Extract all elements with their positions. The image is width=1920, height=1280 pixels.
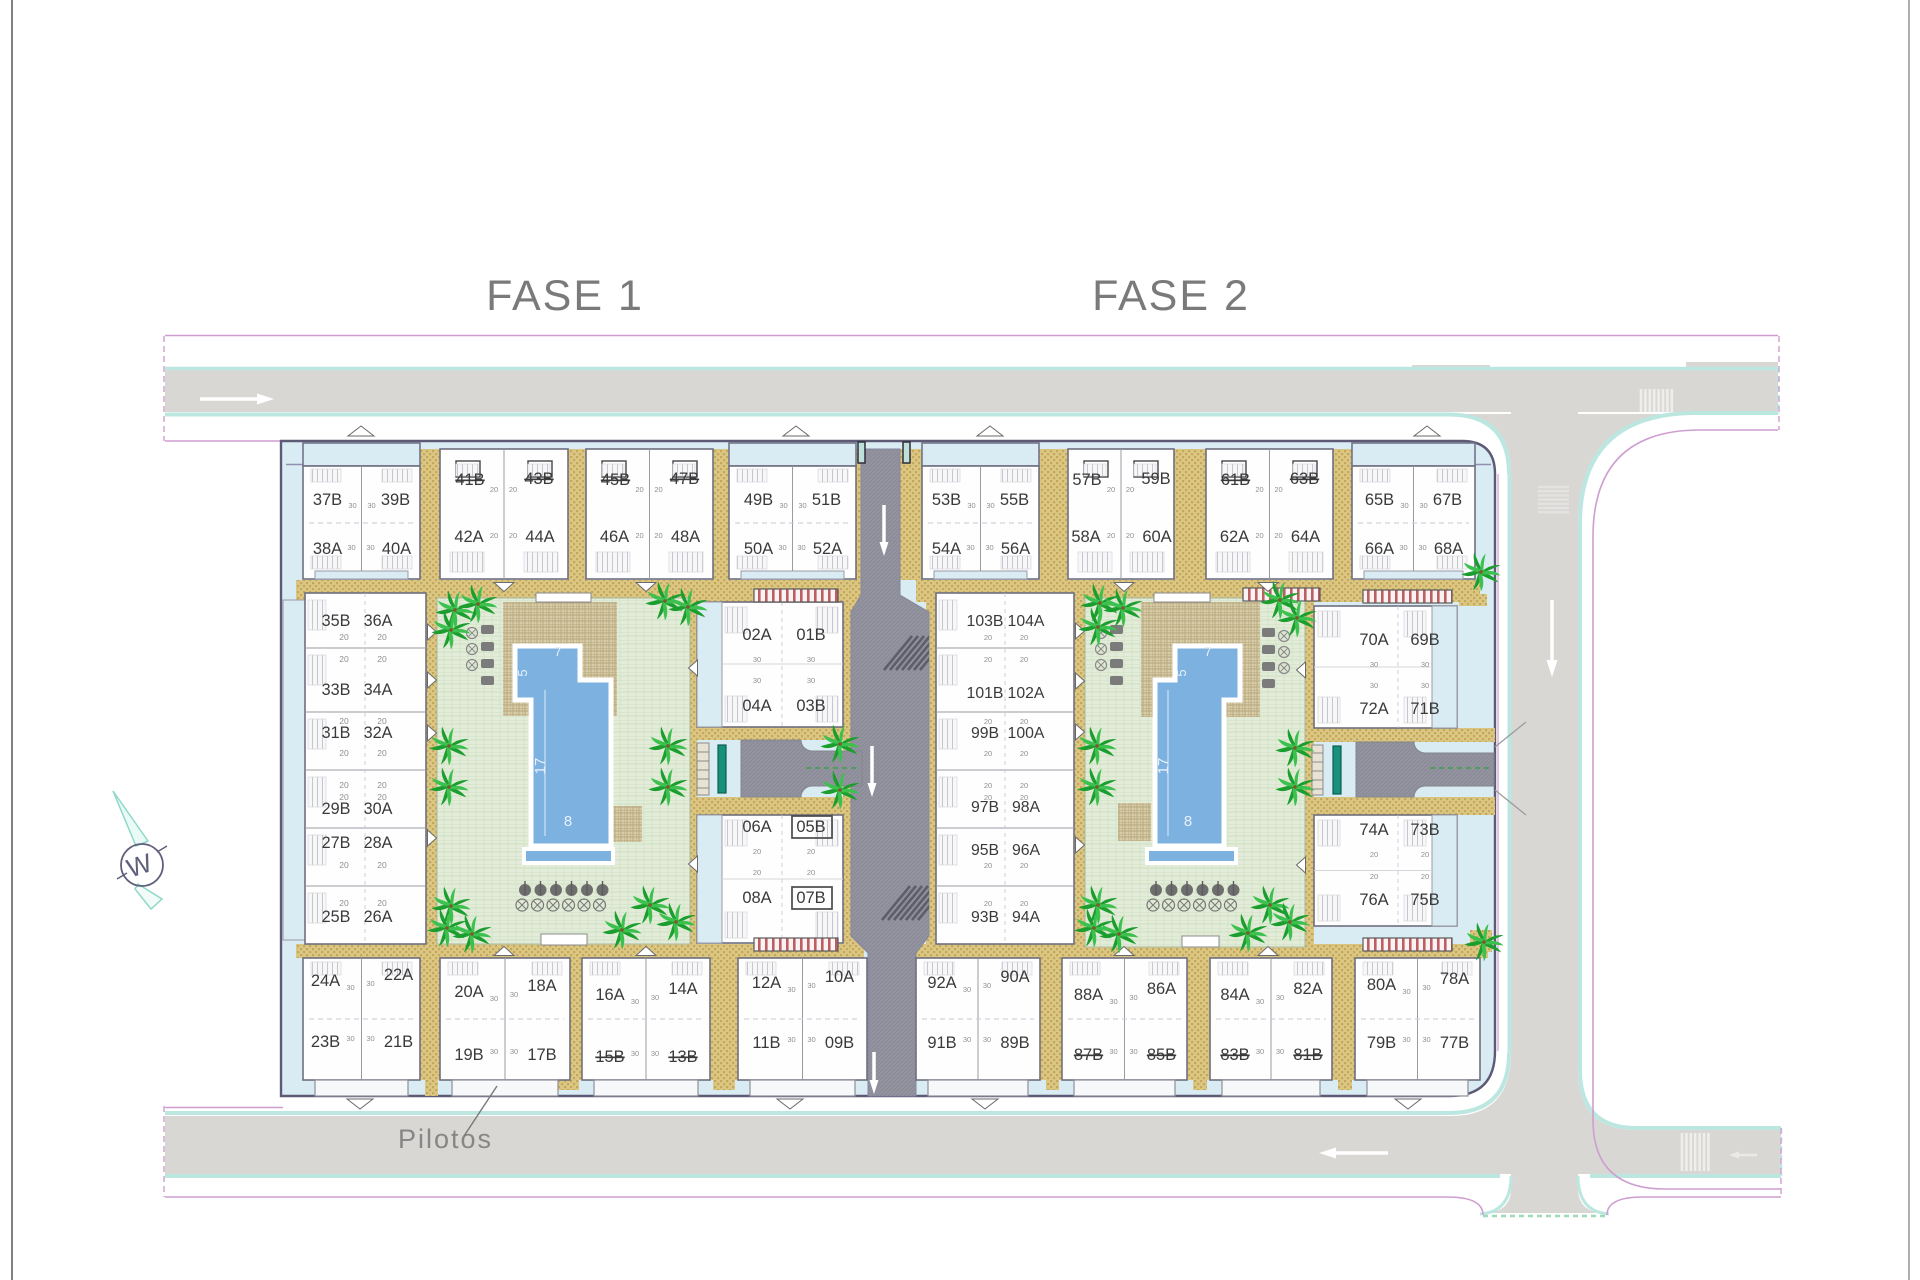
svg-text:20: 20	[1421, 850, 1429, 859]
svg-text:49B: 49B	[744, 491, 773, 509]
svg-text:20: 20	[377, 632, 387, 642]
svg-text:96A: 96A	[1012, 842, 1041, 859]
svg-text:20: 20	[339, 860, 349, 870]
svg-text:20: 20	[490, 485, 498, 494]
svg-text:8: 8	[1184, 813, 1192, 830]
svg-text:FASE 2: FASE 2	[1092, 272, 1250, 320]
svg-text:30: 30	[778, 543, 786, 552]
svg-text:30: 30	[966, 543, 974, 552]
svg-text:30: 30	[779, 501, 787, 510]
svg-text:25B: 25B	[322, 908, 351, 926]
svg-text:30: 30	[1421, 681, 1429, 690]
svg-text:73B: 73B	[1410, 821, 1439, 839]
svg-text:20: 20	[377, 748, 387, 758]
svg-text:26A: 26A	[364, 908, 393, 926]
svg-text:20: 20	[339, 716, 349, 726]
svg-text:100A: 100A	[1008, 725, 1045, 742]
svg-text:30: 30	[983, 1035, 991, 1044]
svg-text:20: 20	[509, 485, 517, 494]
svg-text:30: 30	[1399, 543, 1407, 552]
svg-text:7: 7	[1204, 644, 1211, 659]
svg-text:30: 30	[787, 1035, 795, 1044]
svg-text:30: 30	[963, 985, 971, 994]
svg-text:20: 20	[1107, 485, 1115, 494]
svg-text:62A: 62A	[1220, 528, 1249, 546]
svg-text:45B: 45B	[601, 471, 630, 489]
svg-text:20: 20	[377, 860, 387, 870]
svg-text:60A: 60A	[1142, 528, 1171, 546]
svg-text:01B: 01B	[796, 626, 825, 644]
svg-text:20: 20	[339, 780, 349, 790]
svg-text:30: 30	[985, 543, 993, 552]
svg-text:30: 30	[1421, 660, 1429, 669]
svg-text:11B: 11B	[752, 1034, 780, 1052]
svg-text:20: 20	[807, 847, 815, 856]
svg-text:30: 30	[807, 1035, 815, 1044]
svg-text:06A: 06A	[742, 818, 771, 836]
svg-text:101B: 101B	[967, 685, 1004, 702]
svg-text:30: 30	[807, 676, 815, 685]
svg-text:30: 30	[510, 990, 518, 999]
svg-text:30: 30	[651, 1049, 659, 1058]
svg-text:20: 20	[1020, 861, 1028, 870]
svg-text:30: 30	[1276, 1047, 1284, 1056]
svg-text:03B: 03B	[796, 697, 825, 715]
svg-text:28A: 28A	[364, 834, 393, 852]
svg-text:20: 20	[1421, 872, 1429, 881]
svg-text:20: 20	[1020, 899, 1028, 908]
svg-text:77B: 77B	[1440, 1034, 1469, 1052]
svg-text:30: 30	[787, 985, 795, 994]
svg-text:30: 30	[1256, 997, 1264, 1006]
svg-text:52A: 52A	[813, 540, 842, 558]
svg-text:20: 20	[1020, 717, 1028, 726]
svg-text:87B: 87B	[1074, 1046, 1103, 1064]
svg-text:37B: 37B	[313, 491, 342, 509]
svg-text:30: 30	[963, 1035, 971, 1044]
svg-text:10A: 10A	[825, 968, 854, 986]
svg-text:20: 20	[1020, 633, 1028, 642]
svg-text:46A: 46A	[600, 528, 629, 546]
svg-text:30: 30	[366, 543, 374, 552]
svg-text:80A: 80A	[1367, 976, 1396, 994]
svg-text:30: 30	[753, 676, 761, 685]
svg-text:31B: 31B	[322, 724, 351, 742]
svg-text:5: 5	[1174, 669, 1189, 676]
svg-text:30: 30	[1129, 993, 1137, 1002]
svg-text:21B: 21B	[384, 1033, 413, 1051]
svg-text:82A: 82A	[1293, 980, 1322, 998]
svg-text:95B: 95B	[971, 842, 999, 859]
svg-text:93B: 93B	[971, 909, 999, 926]
svg-text:30: 30	[1418, 543, 1426, 552]
svg-text:30: 30	[490, 994, 498, 1003]
svg-text:20: 20	[807, 868, 815, 877]
svg-text:30: 30	[1402, 1035, 1410, 1044]
svg-text:76A: 76A	[1359, 891, 1388, 909]
svg-text:17: 17	[1155, 758, 1172, 775]
svg-text:20: 20	[377, 898, 387, 908]
svg-text:20: 20	[490, 531, 498, 540]
svg-text:40A: 40A	[382, 540, 411, 558]
svg-text:79B: 79B	[1367, 1034, 1396, 1052]
svg-text:78A: 78A	[1440, 970, 1469, 988]
svg-text:63B: 63B	[1290, 470, 1319, 488]
svg-text:7: 7	[554, 644, 561, 659]
svg-text:41B: 41B	[455, 471, 484, 489]
svg-text:20: 20	[635, 531, 643, 540]
svg-text:72A: 72A	[1359, 700, 1388, 718]
svg-text:30: 30	[346, 1034, 354, 1043]
svg-text:30: 30	[1129, 1047, 1137, 1056]
svg-text:17B: 17B	[527, 1046, 556, 1064]
svg-text:29B: 29B	[322, 800, 351, 818]
svg-text:99B: 99B	[971, 725, 999, 742]
svg-text:Pilotos: Pilotos	[398, 1124, 493, 1154]
svg-text:61B: 61B	[1221, 471, 1250, 489]
svg-text:55B: 55B	[1000, 491, 1029, 509]
svg-text:20: 20	[984, 749, 992, 758]
svg-text:20: 20	[1370, 850, 1378, 859]
svg-text:70A: 70A	[1359, 631, 1388, 649]
svg-text:20: 20	[984, 781, 992, 790]
svg-text:20: 20	[1020, 793, 1028, 802]
svg-text:33B: 33B	[322, 681, 351, 699]
svg-text:14A: 14A	[668, 980, 697, 998]
svg-text:20: 20	[377, 780, 387, 790]
svg-text:38A: 38A	[313, 540, 342, 558]
svg-text:20: 20	[1370, 872, 1378, 881]
svg-text:30: 30	[797, 543, 805, 552]
svg-text:30: 30	[366, 1034, 374, 1043]
svg-text:30: 30	[348, 501, 356, 510]
svg-text:30: 30	[1109, 997, 1117, 1006]
svg-text:16A: 16A	[595, 986, 624, 1004]
svg-text:20: 20	[654, 485, 662, 494]
svg-text:30: 30	[490, 1047, 498, 1056]
svg-text:20: 20	[984, 633, 992, 642]
svg-text:30: 30	[367, 501, 375, 510]
svg-text:20: 20	[1126, 531, 1134, 540]
svg-text:30: 30	[346, 983, 354, 992]
svg-text:85B: 85B	[1147, 1046, 1176, 1064]
svg-text:8: 8	[564, 813, 572, 830]
svg-text:30: 30	[1370, 660, 1378, 669]
svg-text:90A: 90A	[1000, 968, 1029, 986]
svg-text:84A: 84A	[1220, 986, 1249, 1004]
svg-text:20A: 20A	[454, 983, 483, 1001]
svg-text:04A: 04A	[742, 697, 771, 715]
svg-text:30: 30	[631, 1049, 639, 1058]
svg-text:05B: 05B	[796, 818, 825, 836]
svg-text:20: 20	[635, 485, 643, 494]
svg-text:30: 30	[1276, 993, 1284, 1002]
svg-text:20: 20	[984, 861, 992, 870]
svg-text:57B: 57B	[1072, 471, 1101, 489]
svg-text:FASE 1: FASE 1	[486, 272, 644, 320]
svg-text:30: 30	[1400, 501, 1408, 510]
svg-text:30: 30	[807, 655, 815, 664]
svg-text:30: 30	[631, 997, 639, 1006]
svg-text:30: 30	[1422, 983, 1430, 992]
svg-text:30: 30	[986, 501, 994, 510]
svg-text:20: 20	[1274, 531, 1282, 540]
svg-text:30A: 30A	[364, 800, 393, 818]
svg-text:20: 20	[984, 717, 992, 726]
svg-text:30: 30	[967, 501, 975, 510]
svg-text:30: 30	[1256, 1047, 1264, 1056]
svg-text:08A: 08A	[742, 889, 771, 907]
svg-text:20: 20	[1274, 485, 1282, 494]
svg-text:19B: 19B	[454, 1046, 483, 1064]
svg-text:20: 20	[509, 531, 517, 540]
svg-text:54A: 54A	[932, 540, 961, 558]
svg-text:47B: 47B	[670, 470, 699, 488]
svg-text:50A: 50A	[744, 540, 773, 558]
svg-text:30: 30	[1370, 681, 1378, 690]
svg-text:75B: 75B	[1410, 891, 1439, 909]
svg-text:24A: 24A	[311, 972, 340, 990]
svg-text:30: 30	[798, 501, 806, 510]
svg-text:18A: 18A	[527, 977, 556, 995]
svg-text:20: 20	[1255, 531, 1263, 540]
svg-text:22A: 22A	[384, 966, 413, 984]
svg-text:20: 20	[1255, 485, 1263, 494]
svg-text:20: 20	[339, 748, 349, 758]
svg-text:34A: 34A	[364, 681, 393, 699]
svg-text:20: 20	[1126, 485, 1134, 494]
svg-text:30: 30	[753, 655, 761, 664]
svg-text:20: 20	[339, 632, 349, 642]
svg-text:30: 30	[1422, 1035, 1430, 1044]
svg-text:64A: 64A	[1291, 528, 1320, 546]
svg-text:83B: 83B	[1220, 1046, 1249, 1064]
svg-text:07B: 07B	[796, 889, 825, 907]
svg-text:86A: 86A	[1147, 980, 1176, 998]
svg-text:20: 20	[339, 654, 349, 664]
svg-text:74A: 74A	[1359, 821, 1388, 839]
svg-text:48A: 48A	[671, 528, 700, 546]
svg-text:35B: 35B	[322, 612, 351, 630]
svg-text:51B: 51B	[812, 491, 841, 509]
svg-text:20: 20	[1107, 531, 1115, 540]
svg-text:20: 20	[984, 655, 992, 664]
svg-text:20: 20	[753, 868, 761, 877]
svg-text:27B: 27B	[322, 834, 351, 852]
svg-text:56A: 56A	[1001, 540, 1030, 558]
svg-text:69B: 69B	[1410, 631, 1439, 649]
svg-text:30: 30	[1109, 1047, 1117, 1056]
svg-text:20: 20	[377, 716, 387, 726]
svg-text:30: 30	[347, 543, 355, 552]
svg-text:30: 30	[807, 981, 815, 990]
svg-text:59B: 59B	[1141, 470, 1170, 488]
svg-text:30: 30	[651, 993, 659, 1002]
svg-text:30: 30	[983, 981, 991, 990]
svg-text:20: 20	[377, 654, 387, 664]
svg-text:30: 30	[366, 979, 374, 988]
svg-text:92A: 92A	[927, 974, 956, 992]
svg-text:20: 20	[1020, 749, 1028, 758]
svg-text:20: 20	[753, 847, 761, 856]
svg-text:81B: 81B	[1293, 1046, 1322, 1064]
svg-text:42A: 42A	[454, 528, 483, 546]
svg-text:65B: 65B	[1365, 491, 1394, 509]
svg-text:103B: 103B	[967, 613, 1004, 630]
svg-text:20: 20	[984, 793, 992, 802]
svg-text:20: 20	[1020, 655, 1028, 664]
svg-text:88A: 88A	[1074, 986, 1103, 1004]
svg-text:94A: 94A	[1012, 909, 1041, 926]
svg-text:12A: 12A	[752, 974, 781, 992]
svg-text:20: 20	[339, 792, 349, 802]
svg-text:30: 30	[1419, 501, 1427, 510]
svg-text:43B: 43B	[524, 470, 553, 488]
svg-text:20: 20	[377, 792, 387, 802]
svg-text:36A: 36A	[364, 612, 393, 630]
svg-text:13B: 13B	[668, 1048, 697, 1066]
svg-text:89B: 89B	[1000, 1034, 1029, 1052]
svg-text:20: 20	[339, 898, 349, 908]
svg-text:102A: 102A	[1008, 685, 1045, 702]
svg-text:58A: 58A	[1071, 528, 1100, 546]
svg-text:15B: 15B	[595, 1048, 624, 1066]
svg-text:66A: 66A	[1365, 540, 1394, 558]
svg-text:32A: 32A	[364, 724, 393, 742]
svg-text:20: 20	[654, 531, 662, 540]
svg-text:20: 20	[984, 899, 992, 908]
svg-text:5: 5	[515, 669, 530, 676]
svg-text:02A: 02A	[742, 626, 771, 644]
svg-text:53B: 53B	[932, 491, 961, 509]
svg-text:68A: 68A	[1434, 540, 1463, 558]
svg-text:104A: 104A	[1008, 613, 1045, 630]
svg-text:20: 20	[1020, 781, 1028, 790]
svg-text:23B: 23B	[311, 1033, 340, 1051]
svg-text:30: 30	[1402, 987, 1410, 996]
svg-text:39B: 39B	[381, 491, 410, 509]
svg-text:67B: 67B	[1433, 491, 1462, 509]
svg-text:17: 17	[532, 758, 549, 775]
svg-text:09B: 09B	[825, 1034, 854, 1052]
svg-text:30: 30	[510, 1047, 518, 1056]
svg-text:44A: 44A	[525, 528, 554, 546]
svg-text:91B: 91B	[927, 1034, 956, 1052]
svg-text:71B: 71B	[1410, 700, 1439, 718]
